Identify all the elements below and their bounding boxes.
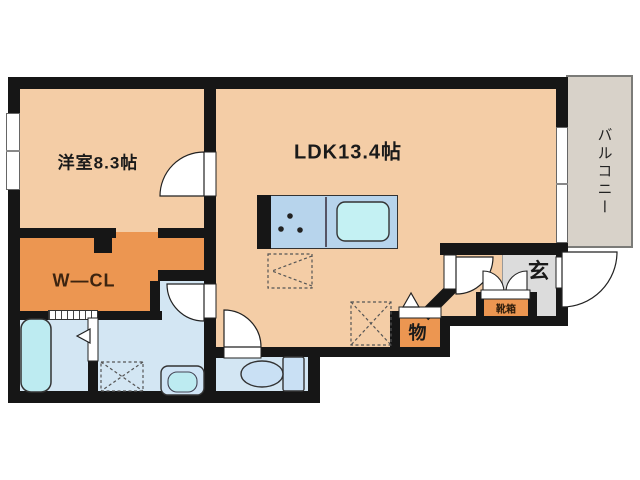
bedroom-door-leaf [204, 152, 216, 196]
stove-burner [297, 227, 303, 233]
bedroom-door-swing [160, 152, 204, 196]
label-western-room: 洋室8.3帖 [58, 149, 139, 174]
storage-door-bar [399, 307, 441, 318]
kitchen-sink [337, 202, 389, 241]
hall-door-leaf [444, 255, 456, 289]
bathtub [21, 319, 51, 392]
toilet-door-leaf [224, 347, 261, 358]
storage-door-marker [403, 293, 419, 307]
shoebox-door-bar [481, 290, 530, 299]
toilet-tank [283, 357, 304, 391]
washroom-door-swing [167, 284, 204, 321]
stove-burner [278, 226, 284, 232]
floor-plan: 洋室8.3帖 LDK13.4帖 W—CL バルコニー 玄 靴箱 物 [0, 0, 640, 480]
shoebox-door-swing-left [483, 271, 504, 292]
wash-basin-bowl [168, 372, 197, 392]
label-balcony: バルコニー [594, 127, 615, 217]
label-walk-in-closet: W—CL [53, 271, 116, 292]
entrance-door-swing [562, 252, 617, 307]
label-ldk: LDK13.4帖 [294, 136, 402, 165]
toilet-bowl [241, 361, 283, 387]
equipment-space [351, 302, 391, 345]
toilet-door-swing [224, 310, 261, 347]
label-storage: 物 [409, 319, 428, 345]
washroom-door-leaf [204, 284, 216, 318]
refrigerator-space [268, 254, 312, 288]
stove-burner [287, 213, 293, 219]
bathroom-door-marker [77, 329, 90, 343]
label-entrance: 玄 [528, 255, 550, 285]
label-shoe-box: 靴箱 [496, 301, 516, 316]
fixtures-layer [0, 0, 640, 480]
shoebox-door-swing-right [506, 271, 527, 292]
washing-machine-pan [101, 362, 143, 391]
